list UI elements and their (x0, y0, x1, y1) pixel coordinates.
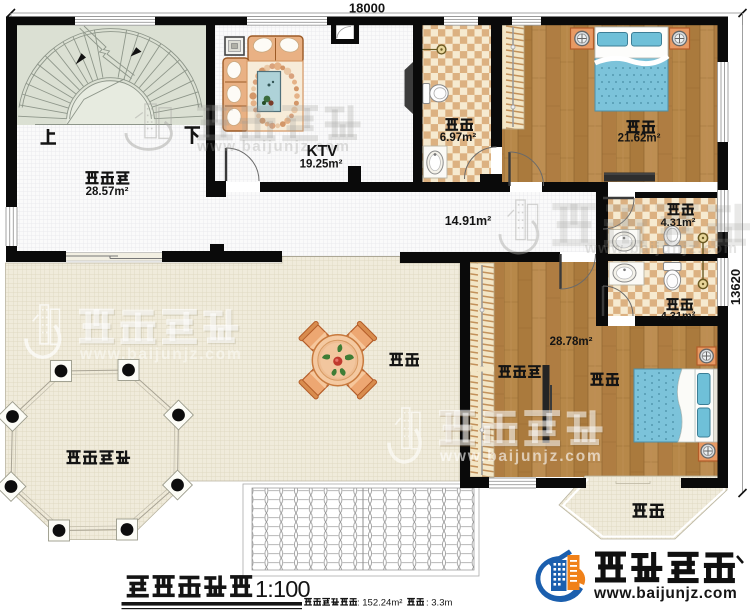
svg-text:www.baijunjz.com: www.baijunjz.com (584, 240, 738, 257)
svg-text:28.57m²: 28.57m² (86, 186, 129, 198)
svg-text:28.78m²: 28.78m² (550, 336, 593, 348)
svg-text:: 152.24m²: : 152.24m² (357, 598, 402, 609)
svg-text:1:100: 1:100 (255, 576, 311, 602)
svg-text:www.baijunjz.com: www.baijunjz.com (593, 585, 737, 602)
svg-text:www.baijunjz.com: www.baijunjz.com (79, 346, 243, 363)
svg-text:6.97m²: 6.97m² (440, 132, 477, 144)
svg-text:KTV: KTV (307, 143, 339, 160)
svg-text:4.31m²: 4.31m² (661, 217, 696, 229)
svg-text:21.62m²: 21.62m² (618, 133, 661, 145)
svg-text:www.baijunjz.com: www.baijunjz.com (439, 448, 603, 465)
svg-text:: 3.3m: : 3.3m (426, 598, 452, 609)
svg-text:19.25m²: 19.25m² (300, 159, 343, 171)
svg-text:4.31m²: 4.31m² (661, 311, 696, 323)
svg-text:14.91m²: 14.91m² (445, 214, 492, 228)
svg-text:18000: 18000 (349, 1, 385, 16)
svg-text:13620: 13620 (728, 269, 743, 305)
